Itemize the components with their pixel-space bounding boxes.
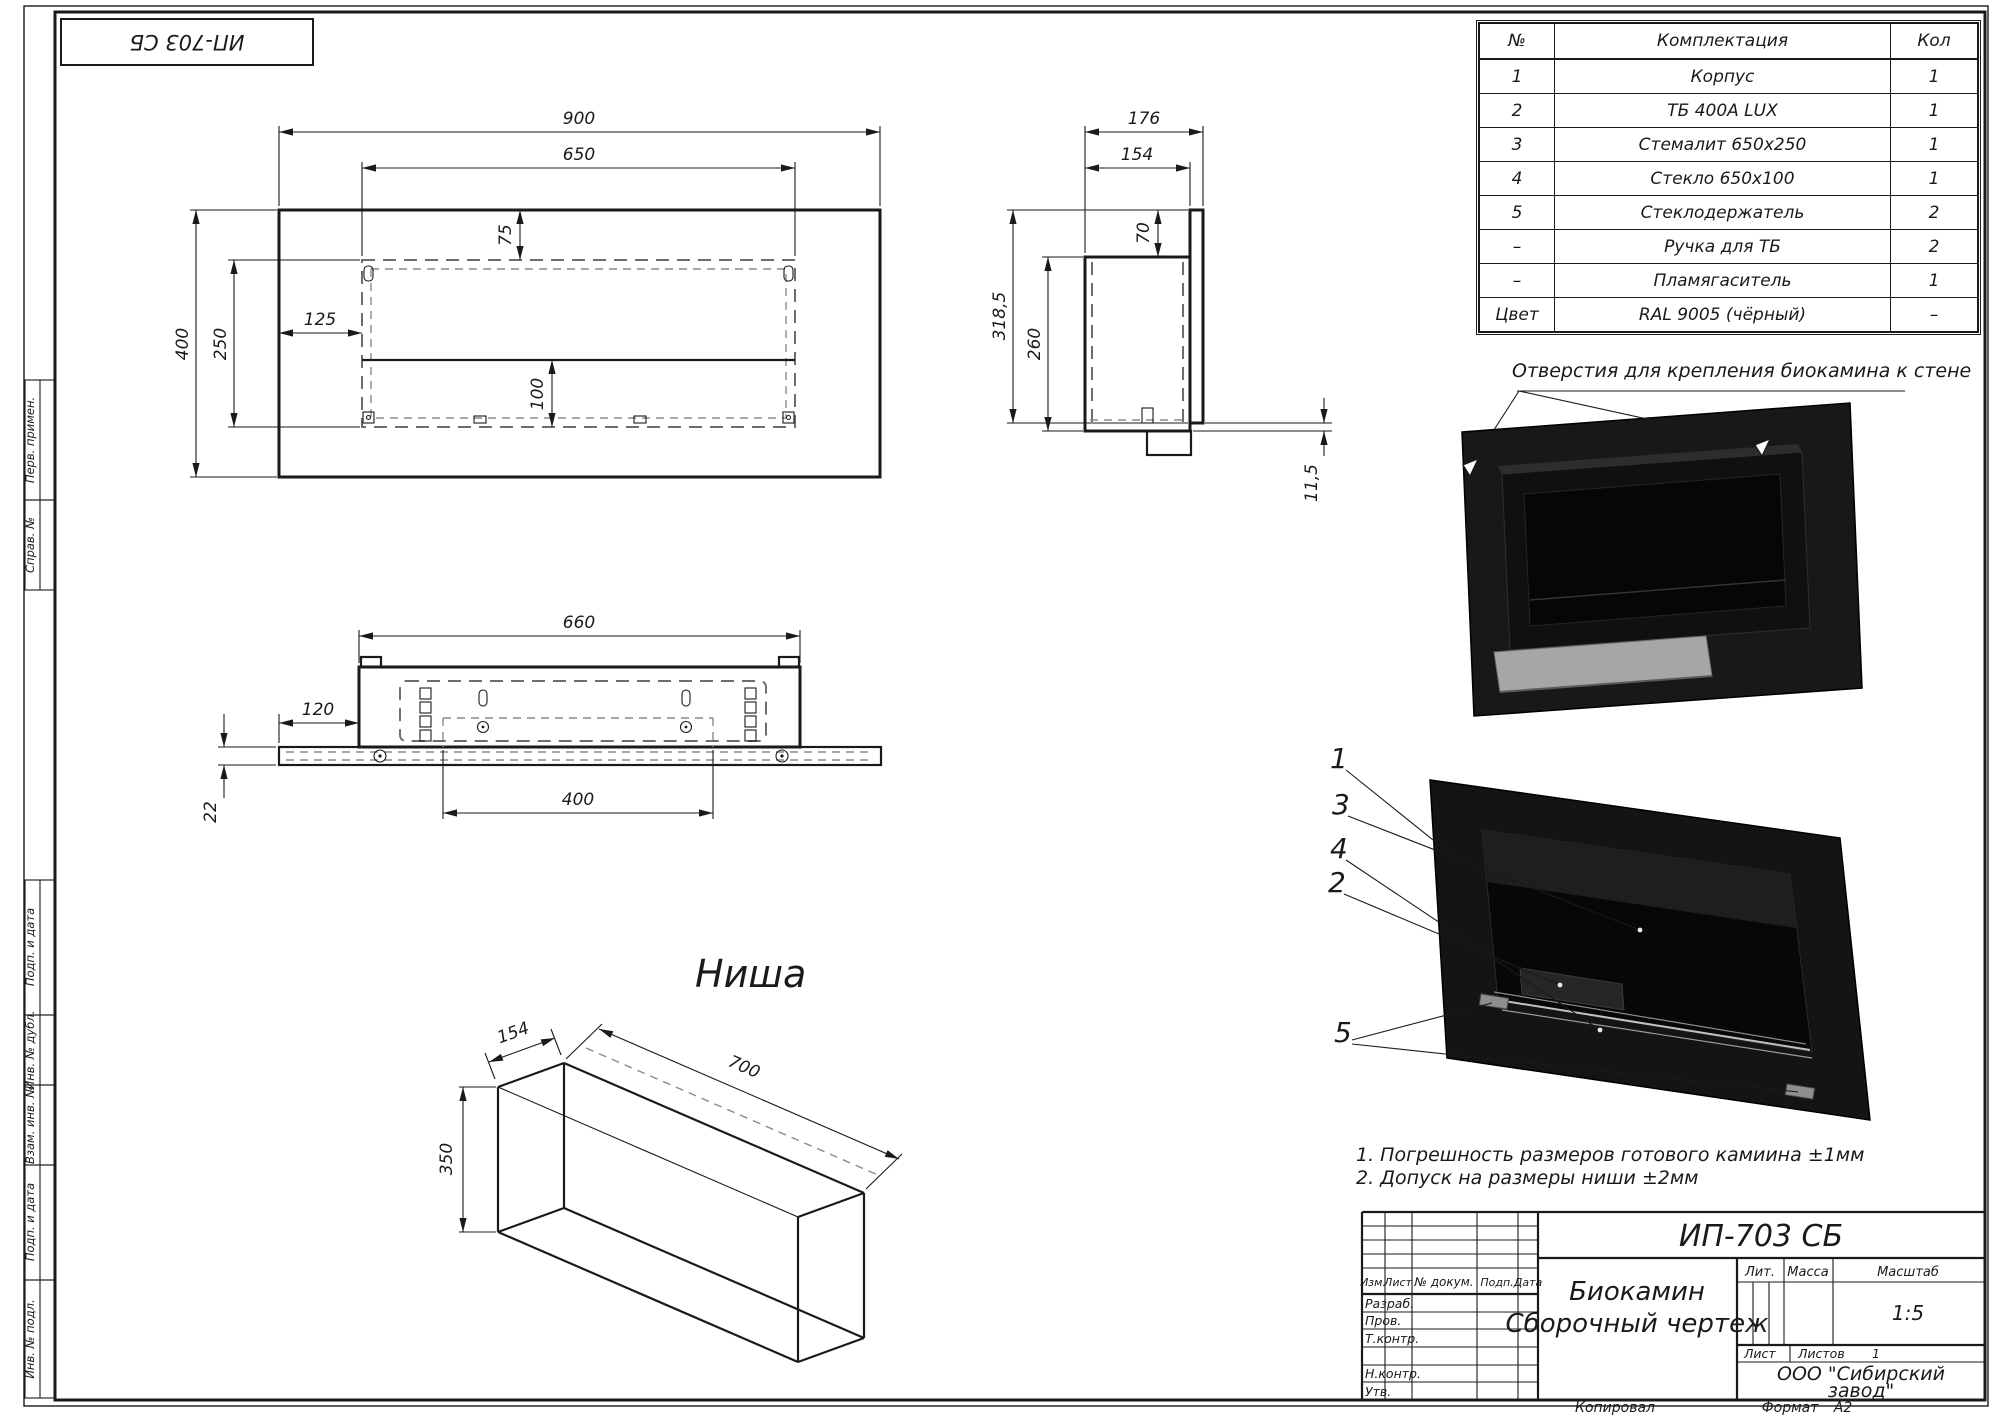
tb-row-razrab: Разраб. (1365, 1296, 1414, 1311)
tb-scale-value: 1:5 (1892, 1301, 1924, 1325)
dim-side-total-depth: 176 (1128, 109, 1161, 129)
cell: Корпус (1555, 59, 1891, 94)
niche-title: Ниша (695, 952, 806, 996)
margin-label: Взам. инв. № (23, 1086, 37, 1164)
cell: 2 (1891, 196, 1979, 230)
dim-bottom-flange-height: 22 (201, 801, 221, 823)
tb-col-data: Дата (1513, 1276, 1543, 1289)
tb-doc-number: ИП-703 СБ (1679, 1219, 1843, 1254)
table-row: –Ручка для ТБ2 (1479, 230, 1978, 264)
margin-label: Инв. № дубл. (23, 1011, 37, 1090)
title-block: Изм. Лист № докум. Подп. Дата Разраб. Пр… (1360, 1212, 1985, 1415)
col-qty: Кол (1891, 23, 1979, 59)
render-exploded-fireplace (1430, 780, 1870, 1120)
table-row: 1Корпус1 (1479, 59, 1978, 94)
cell: ТБ 400А LUX (1555, 94, 1891, 128)
dim-niche-height: 350 (437, 1143, 457, 1175)
cell: Стеклодержатель (1555, 196, 1891, 230)
cell: 1 (1891, 94, 1979, 128)
table-row: 2ТБ 400А LUX1 (1479, 94, 1978, 128)
dim-front-opening-height: 250 (211, 328, 231, 360)
dim-bottom-slot-width: 400 (562, 790, 594, 810)
tb-name-line1: Биокамин (1569, 1277, 1705, 1307)
dim-side-body-height: 260 (1025, 328, 1045, 360)
dim-niche-depth: 154 (495, 1018, 532, 1048)
tb-scale-label: Масштаб (1877, 1265, 1939, 1280)
callout-4: 4 (1330, 832, 1348, 865)
bottom-view: 660 120 22 400 (201, 613, 881, 823)
cell: 1 (1891, 162, 1979, 196)
table-row: 5Стеклодержатель2 (1479, 196, 1978, 230)
tb-row-utv: Утв. (1365, 1384, 1391, 1399)
parts-table-header: № Комплектация Кол (1479, 23, 1978, 59)
tb-col-podp: Подп. (1480, 1276, 1513, 1289)
cell: – (1479, 230, 1555, 264)
dim-side-body-depth: 154 (1121, 145, 1153, 165)
dim-front-opening-width: 650 (563, 145, 595, 165)
tb-name-line2: Сборочный чертеж (1506, 1309, 1770, 1339)
dim-side-bottom-offset: 11,5 (1302, 464, 1322, 502)
col-number: № (1479, 23, 1555, 59)
tb-sheets-value: 1 (1872, 1346, 1880, 1361)
tb-format-value: А2 (1833, 1400, 1853, 1415)
dim-niche-width: 700 (725, 1052, 763, 1083)
dim-front-width: 900 (563, 109, 595, 129)
cell: 1 (1891, 128, 1979, 162)
cell: 2 (1479, 94, 1555, 128)
cell: 5 (1479, 196, 1555, 230)
tb-col-ndokum: № докум. (1413, 1275, 1473, 1289)
tb-col-izm: Изм. (1360, 1276, 1386, 1289)
margin-label: Инв. № подл. (23, 1299, 37, 1378)
cell: – (1479, 264, 1555, 298)
dim-front-glass-height: 100 (528, 378, 548, 410)
table-row: ЦветRAL 9005 (чёрный)– (1479, 298, 1978, 333)
corner-stamp: ИП-703 СБ (60, 18, 314, 66)
margin-label: Подп. и дата (23, 908, 37, 986)
tb-col-list: Лист (1383, 1276, 1412, 1289)
note-line: 1. Погрешность размеров готового камиина… (1356, 1144, 1864, 1167)
cell: 1 (1891, 264, 1979, 298)
cell: 3 (1479, 128, 1555, 162)
cell: 1 (1891, 59, 1979, 94)
table-row: 3Стемалит 650х2501 (1479, 128, 1978, 162)
dim-front-height: 400 (173, 328, 193, 360)
tb-row-prov: Пров. (1365, 1313, 1401, 1328)
side-view: 176 154 70 318,5 260 11,5 (990, 109, 1332, 502)
mount-holes-label: Отверстия для крепления биокамина к стен… (1512, 360, 1932, 382)
cell: Цвет (1479, 298, 1555, 333)
margin-label: Справ. № (23, 517, 37, 573)
technical-notes: 1. Погрешность размеров готового камиина… (1356, 1144, 1864, 1190)
cell: Ручка для ТБ (1555, 230, 1891, 264)
col-configuration: Комплектация (1555, 23, 1891, 59)
dim-bottom-width: 660 (563, 613, 595, 633)
tb-company-line2: завод" (1828, 1380, 1894, 1402)
tb-sheets-label: Листов (1797, 1346, 1845, 1361)
cell: Стекло 650х100 (1555, 162, 1891, 196)
callout-3: 3 (1332, 788, 1350, 821)
callout-1: 1 (1330, 742, 1348, 775)
dim-front-top-offset: 75 (496, 224, 516, 246)
tb-row-nkontr: Н.контр. (1365, 1366, 1421, 1381)
cell: 1 (1479, 59, 1555, 94)
cell: 2 (1891, 230, 1979, 264)
margin-label: Перв. примен. (23, 397, 37, 483)
cell: 4 (1479, 162, 1555, 196)
drawing-sheet: Перв. примен. Справ. № Подп. и дата Инв.… (0, 0, 2000, 1415)
tb-row-tkontr: Т.контр. (1365, 1331, 1419, 1346)
dim-side-top-offset: 70 (1134, 222, 1154, 244)
niche-view: 350 154 700 (437, 1018, 902, 1362)
table-row: –Пламягаситель1 (1479, 264, 1978, 298)
render-mounted-fireplace (1462, 391, 1905, 716)
dim-side-plate-height: 318,5 (990, 292, 1010, 341)
cell: – (1891, 298, 1979, 333)
tb-sheet-label: Лист (1743, 1346, 1776, 1361)
tb-copied-label: Копировал (1575, 1400, 1655, 1415)
corner-stamp-text: ИП-703 СБ (130, 30, 245, 54)
parts-table: № Комплектация Кол 1Корпус1 2ТБ 400А LUX… (1478, 22, 1979, 333)
front-view: 900 650 400 250 125 75 100 (173, 109, 880, 477)
table-row: 4Стекло 650х1001 (1479, 162, 1978, 196)
callout-2: 2 (1328, 866, 1346, 899)
callout-5: 5 (1334, 1016, 1352, 1049)
cell: RAL 9005 (чёрный) (1555, 298, 1891, 333)
cell: Пламягаситель (1555, 264, 1891, 298)
margin-column: Перв. примен. Справ. № Подп. и дата Инв.… (23, 380, 55, 1398)
tb-lit-label: Лит. (1744, 1265, 1775, 1280)
margin-label: Подп. и дата (23, 1183, 37, 1261)
tb-format-label: Формат (1762, 1400, 1820, 1415)
tb-mass-label: Масса (1787, 1265, 1828, 1280)
dim-front-left-offset: 125 (304, 310, 336, 330)
dim-bottom-flange-offset: 120 (302, 700, 334, 720)
cell: Стемалит 650х250 (1555, 128, 1891, 162)
note-line: 2. Допуск на размеры ниши ±2мм (1356, 1167, 1864, 1190)
